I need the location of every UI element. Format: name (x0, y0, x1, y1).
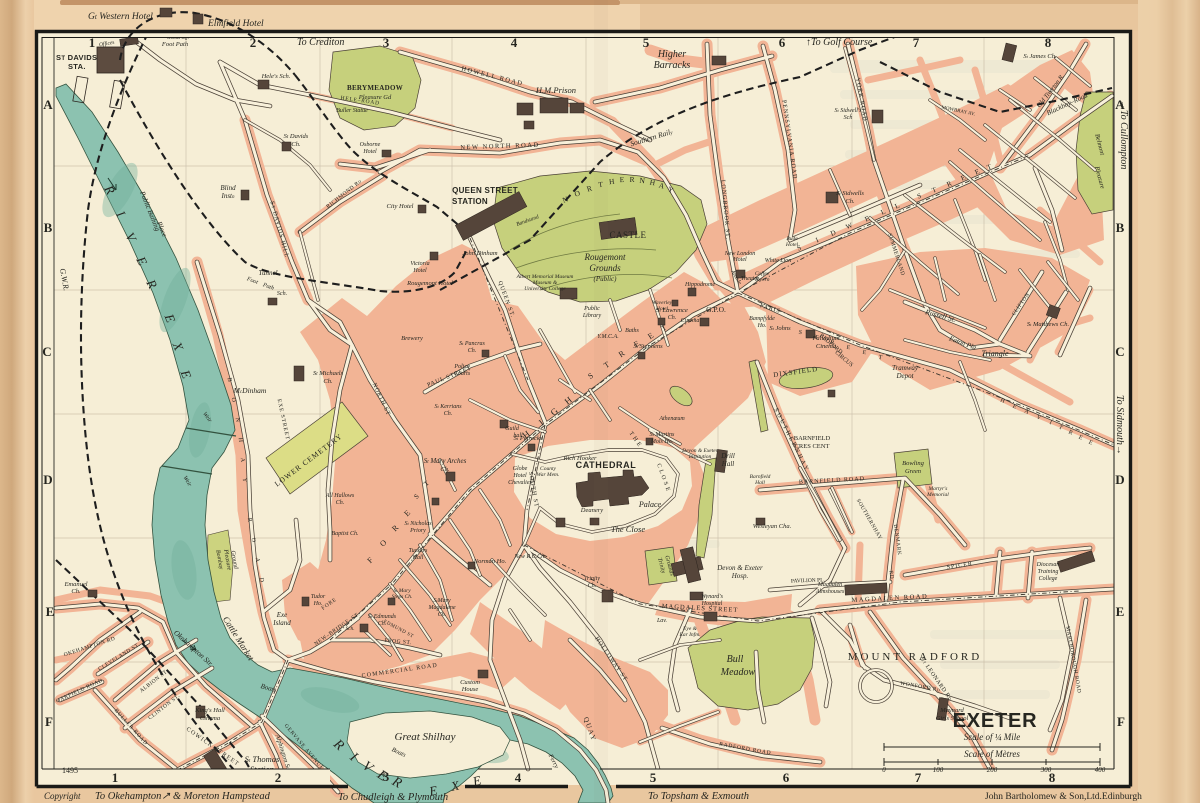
svg-text:QUEEN STREET: QUEEN STREET (452, 186, 518, 195)
svg-text:Steps Ch.: Steps Ch. (392, 594, 413, 600)
svg-text:Almshouses: Almshouses (815, 589, 845, 595)
svg-text:St Kerrians: St Kerrians (434, 404, 462, 410)
svg-text:St Mary Arches: St Mary Arches (424, 457, 467, 465)
svg-text:Memorial: Memorial (926, 492, 949, 498)
svg-text:Ear Infm.: Ear Infm. (678, 631, 700, 638)
svg-text:St James Ch.: St James Ch. (1023, 53, 1057, 60)
svg-text:E: E (1116, 604, 1125, 619)
svg-text:Scale of Mètres: Scale of Mètres (964, 749, 1020, 759)
svg-text:Baths: Baths (625, 328, 639, 334)
svg-text:Rich Hooker: Rich Hooker (562, 455, 597, 462)
svg-text:To Crediton: To Crediton (297, 37, 344, 48)
svg-text:6: 6 (779, 35, 786, 50)
svg-text:All Hallows: All Hallows (325, 493, 355, 499)
svg-text:St Johns: St Johns (769, 325, 791, 332)
svg-text:Hall: Hall (754, 480, 765, 486)
svg-text:Hospital: Hospital (701, 601, 723, 607)
svg-text:Devon & Exeter: Devon & Exeter (716, 564, 763, 572)
svg-text:Tramway: Tramway (892, 364, 919, 372)
svg-text:Cinema: Cinema (200, 715, 220, 722)
svg-text:7: 7 (913, 35, 920, 50)
svg-text:Blind: Blind (220, 184, 236, 192)
svg-text:PAVILION PL.: PAVILION PL. (791, 577, 826, 584)
svg-text:B: B (44, 220, 53, 235)
svg-text:Brewery: Brewery (401, 335, 423, 342)
svg-text:1: 1 (112, 770, 119, 785)
svg-text:F: F (45, 714, 53, 729)
svg-text:Chevalier: Chevalier (508, 480, 532, 486)
svg-text:Wynard's: Wynard's (701, 594, 724, 600)
svg-text:Lav.: Lav. (656, 618, 667, 624)
svg-text:Athenæum: Athenæum (658, 416, 685, 422)
svg-text:University College: University College (524, 286, 566, 292)
svg-text:Palladium: Palladium (811, 335, 839, 342)
svg-text:Guild: Guild (505, 426, 520, 432)
svg-text:St Thomas: St Thomas (245, 754, 280, 764)
svg-text:200: 200 (987, 766, 998, 774)
svg-text:Tunnel: Tunnel (258, 269, 277, 277)
svg-text:D: D (43, 472, 52, 487)
svg-text:To Topsham & Exmouth: To Topsham & Exmouth (648, 791, 749, 802)
svg-text:2: 2 (250, 35, 257, 50)
svg-text:To Sidmouth→: To Sidmouth→ (1114, 395, 1125, 455)
svg-text:St Stephens: St Stephens (633, 343, 663, 350)
svg-text:John Bartholomew & Son,Ltd.Edi: John Bartholomew & Son,Ltd.Edinburgh (985, 792, 1142, 802)
svg-text:St Matthews Ch.: St Matthews Ch. (1027, 321, 1070, 328)
svg-text:STATION: STATION (452, 197, 488, 206)
svg-text:Osborne: Osborne (360, 142, 381, 148)
svg-text:Institution: Institution (688, 454, 712, 460)
svg-text:College: College (1039, 576, 1058, 582)
svg-text:King's Hall: King's Hall (194, 707, 225, 714)
svg-text:St Edmunds: St Edmunds (368, 614, 397, 620)
svg-text:R: R (629, 175, 634, 184)
svg-text:Norman Ho.: Norman Ho. (473, 558, 507, 565)
svg-text:Rougemont Hotel: Rougemont Hotel (406, 280, 453, 287)
svg-text:6: 6 (783, 770, 790, 785)
svg-text:Maynard: Maynard (939, 707, 964, 714)
svg-text:A: A (43, 97, 53, 112)
svg-text:White Lion: White Lion (765, 258, 792, 264)
svg-text:Priory: Priory (409, 528, 426, 534)
svg-text:Wesleyan Cha.: Wesleyan Cha. (753, 523, 792, 530)
svg-text:Barnfield: Barnfield (750, 473, 771, 480)
svg-text:St Nicholas: St Nicholas (404, 521, 432, 527)
svg-text:3: 3 (383, 769, 390, 784)
svg-text:House: House (461, 686, 479, 693)
svg-text:Hotel: Hotel (732, 257, 747, 263)
svg-text:0: 0 (882, 766, 886, 774)
svg-text:St Pancras: St Pancras (459, 341, 485, 347)
svg-text:H.M.Prison: H.M.Prison (535, 85, 576, 95)
svg-text:Depot: Depot (895, 372, 914, 380)
svg-text:→To Cullompton: →To Cullompton (1118, 100, 1129, 169)
svg-text:3: 3 (383, 35, 390, 50)
svg-text:BARNFIELD: BARNFIELD (794, 435, 831, 442)
svg-text:C: C (42, 344, 51, 359)
svg-text:War Mem.: War Mem. (537, 472, 560, 478)
svg-text:MOUNT RADFORD: MOUNT RADFORD (848, 651, 982, 663)
svg-text:E: E (46, 604, 55, 619)
svg-text:The Close: The Close (611, 524, 645, 534)
svg-text:Ch.: Ch. (336, 500, 345, 506)
svg-text:Police: Police (453, 364, 470, 370)
svg-text:Hotel: Hotel (412, 268, 427, 274)
svg-text:Hosp.: Hosp. (731, 572, 749, 580)
svg-text:300: 300 (1040, 766, 1052, 774)
svg-text:D: D (1115, 472, 1124, 487)
svg-text:Meadow: Meadow (720, 667, 756, 678)
svg-text:To Chudleigh & Plymouth: To Chudleigh & Plymouth (338, 792, 448, 803)
svg-text:5: 5 (643, 35, 650, 50)
svg-text:St Sidwells: St Sidwells (836, 190, 864, 197)
svg-text:CASTLE: CASTLE (609, 230, 646, 240)
svg-text:Ch.: Ch. (845, 198, 855, 205)
svg-text:Hotel: Hotel (362, 149, 377, 155)
svg-text:Gt Western Hotel: Gt Western Hotel (88, 12, 153, 22)
svg-text:Baptist Ch.: Baptist Ch. (331, 531, 358, 537)
svg-text:StMary: StMary (433, 598, 451, 604)
svg-text:400: 400 (1095, 766, 1106, 774)
svg-text:Ch.: Ch. (468, 348, 477, 354)
svg-text:Ch.: Ch. (291, 141, 301, 148)
svg-text:Ch.: Ch. (71, 588, 81, 595)
svg-text:↑To Golf Course: ↑To Golf Course (806, 37, 873, 48)
svg-text:St Davids: St Davids (284, 133, 309, 140)
svg-text:B: B (1116, 220, 1125, 235)
svg-text:1: 1 (89, 35, 96, 50)
svg-text:Girls School: Girls School (936, 715, 969, 722)
svg-text:100: 100 (933, 766, 944, 774)
svg-text:Sch.: Sch. (277, 291, 287, 297)
svg-text:8: 8 (1045, 35, 1052, 50)
svg-text:Bampfylde: Bampfylde (749, 315, 775, 322)
svg-text:Coffee: Coffee (755, 270, 770, 277)
svg-text:Hotel: Hotel (655, 306, 669, 312)
svg-text:St Michaels: St Michaels (313, 370, 344, 377)
svg-text:Palace: Palace (638, 500, 662, 509)
svg-text:McDinham: McDinham (233, 386, 267, 395)
svg-text:Ho.: Ho. (757, 323, 767, 329)
svg-text:Ch.: Ch. (378, 621, 387, 627)
svg-text:Victoria: Victoria (410, 261, 429, 267)
svg-text:Ch.: Ch. (323, 378, 333, 385)
svg-text:Courts: Courts (454, 371, 471, 377)
svg-text:New R.C.Ch.: New R.C.Ch. (513, 554, 545, 560)
svg-text:Globe: Globe (513, 466, 528, 472)
svg-text:5: 5 (650, 770, 657, 785)
svg-text:Scale of ¼ Mile: Scale of ¼ Mile (964, 732, 1020, 742)
svg-text:7: 7 (915, 770, 922, 785)
svg-text:G.P.O.: G.P.O. (706, 305, 726, 314)
svg-text:Ch.: Ch. (440, 466, 450, 473)
svg-text:St Martins: St Martins (650, 432, 675, 438)
svg-text:Ch.: Ch. (444, 411, 453, 417)
svg-text:Green: Green (905, 468, 921, 475)
svg-text:Diocesan: Diocesan (1036, 562, 1060, 568)
svg-text:Hotel: Hotel (512, 473, 527, 479)
svg-text:St Sidwell's: St Sidwell's (834, 108, 862, 114)
svg-text:1495: 1495 (62, 766, 78, 775)
svg-text:Foot Path: Foot Path (161, 41, 188, 48)
svg-text:Emanuel: Emanuel (63, 581, 87, 588)
svg-text:C: C (1115, 344, 1124, 359)
svg-text:Magdalene: Magdalene (428, 605, 456, 611)
svg-text:Training: Training (1038, 569, 1059, 575)
svg-text:Cinema: Cinema (681, 318, 700, 324)
svg-text:Cinema: Cinema (816, 343, 836, 350)
svg-text:F: F (1117, 714, 1125, 729)
svg-text:Elmfield Hotel: Elmfield Hotel (207, 18, 264, 29)
svg-text:To Okehampton↗ & Moreton Hamps: To Okehampton↗ & Moreton Hampstead (95, 791, 271, 802)
svg-text:City Hotel: City Hotel (387, 203, 414, 210)
svg-text:Great Shilhay: Great Shilhay (395, 731, 456, 743)
svg-text:R: R (246, 518, 252, 523)
svg-text:Copyright: Copyright (44, 791, 81, 801)
svg-text:4: 4 (515, 770, 522, 785)
svg-text:E: E (619, 175, 624, 184)
svg-text:Custom: Custom (460, 679, 480, 686)
svg-text:John Dinham: John Dinham (462, 250, 498, 257)
svg-text:Sch̓: Sch̓ (844, 113, 853, 121)
svg-text:Drill: Drill (720, 452, 735, 460)
svg-text:Bowling: Bowling (902, 460, 924, 467)
svg-text:RD: RD (887, 570, 894, 579)
svg-text:4: 4 (511, 35, 518, 50)
svg-text:STA.: STA. (68, 62, 86, 71)
svg-text:Barracks: Barracks (654, 60, 691, 71)
svg-text:Tavern: Tavern (754, 277, 769, 283)
svg-text:Bull: Bull (727, 654, 744, 665)
svg-text:Buller Statue: Buller Statue (336, 108, 368, 114)
svg-text:2: 2 (275, 770, 282, 785)
svg-text:Hall: Hall (721, 460, 735, 468)
svg-text:Triangle: Triangle (981, 349, 1009, 358)
svg-text:Higher: Higher (657, 49, 686, 60)
svg-text:Ch.: Ch. (668, 315, 677, 321)
svg-text:BERYMEADOW: BERYMEADOW (347, 84, 403, 92)
svg-text:St Petrocks: St Petrocks (514, 435, 543, 442)
svg-text:Hotel: Hotel (785, 242, 799, 248)
svg-text:Tudor: Tudor (311, 594, 326, 600)
svg-text:Hippodrome: Hippodrome (684, 282, 715, 288)
svg-text:Hele's Sch.: Hele's Sch. (261, 73, 291, 80)
svg-text:Hall: Hall (412, 555, 424, 561)
svg-text:Ch.: Ch. (438, 612, 447, 618)
svg-text:Ho.: Ho. (313, 601, 323, 607)
svg-text:Mols Ho.: Mols Ho. (650, 439, 673, 445)
svg-text:Sch.: Sch. (345, 626, 354, 632)
svg-text:Tuckers: Tuckers (409, 548, 428, 554)
